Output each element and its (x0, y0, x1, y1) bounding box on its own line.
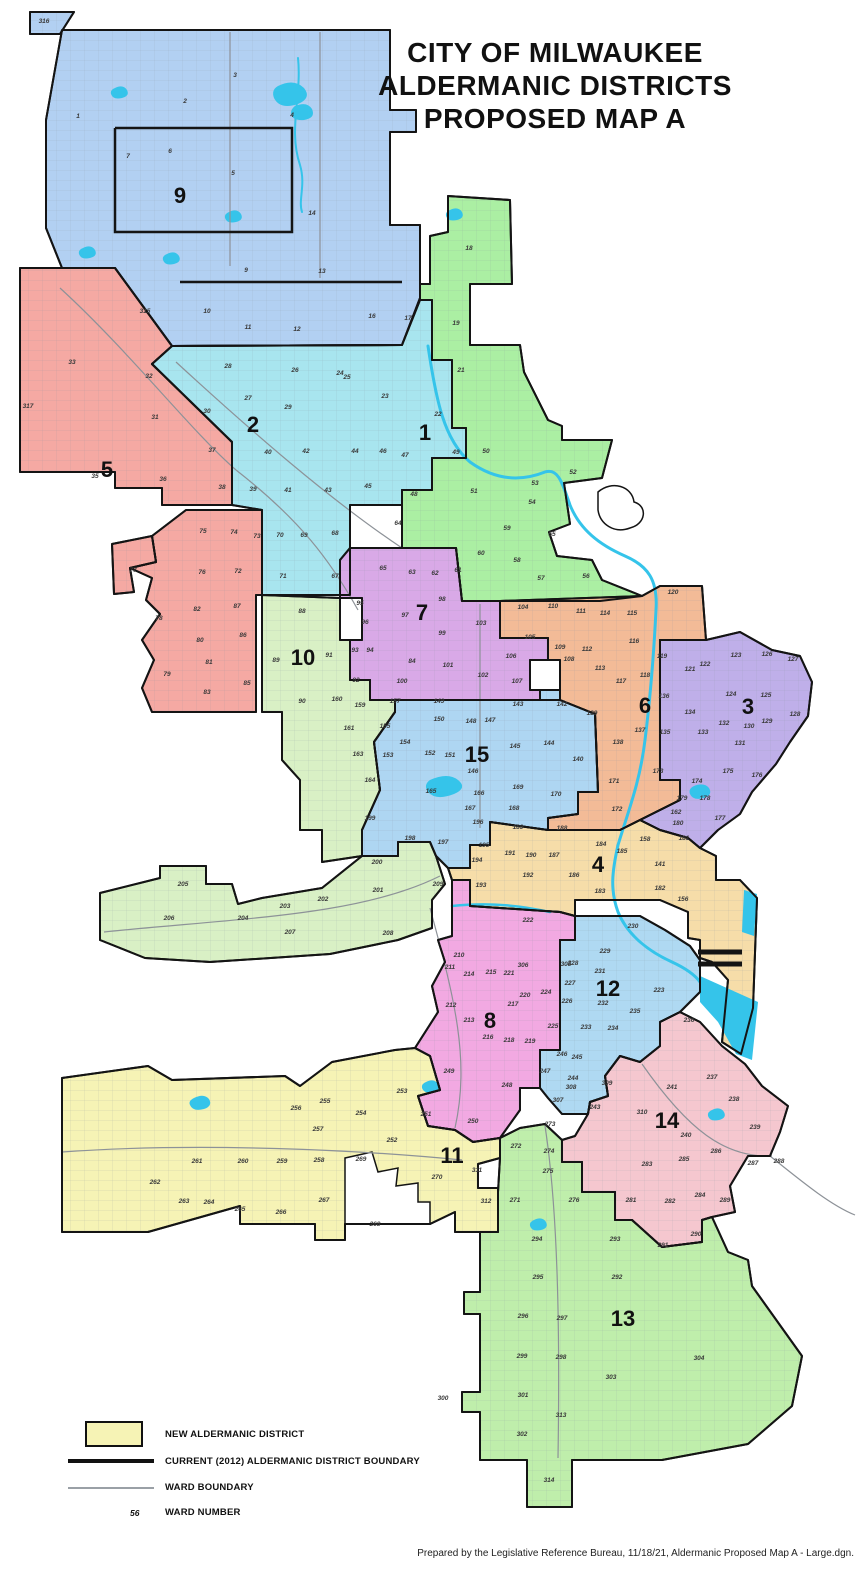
ward-number-187: 187 (549, 852, 560, 859)
legend-label-current-boundary: CURRENT (2012) ALDERMANIC DISTRICT BOUND… (165, 1456, 420, 1467)
ward-number-297: 297 (556, 1315, 568, 1322)
ward-number-258: 258 (313, 1157, 325, 1164)
ward-number-4: 4 (289, 112, 294, 119)
ward-number-310: 310 (637, 1109, 648, 1116)
ward-number-166: 166 (474, 790, 485, 797)
ward-number-148: 148 (466, 718, 477, 725)
ward-number-296: 296 (517, 1313, 529, 1320)
ward-number-54: 54 (528, 499, 536, 506)
ward-number-151: 151 (445, 752, 456, 759)
ward-number-202: 202 (317, 896, 329, 903)
district-7-label: 7 (416, 600, 428, 625)
ward-number-303: 303 (606, 1374, 617, 1381)
ward-number-9: 9 (244, 267, 248, 274)
legend-thin-line (68, 1487, 154, 1489)
ward-number-272: 272 (510, 1143, 522, 1150)
ward-number-231: 231 (594, 968, 606, 975)
ward-number-247: 247 (539, 1068, 551, 1075)
ward-number-62: 62 (431, 570, 439, 577)
ward-number-91: 91 (325, 652, 333, 659)
ward-number-211: 211 (444, 964, 456, 971)
ward-number-276: 276 (568, 1197, 580, 1204)
ward-number-283: 283 (641, 1161, 653, 1168)
ward-number-228: 228 (567, 960, 579, 967)
ward-number-209: 209 (432, 881, 444, 888)
ward-number-229: 229 (599, 948, 611, 955)
ward-number-218: 218 (503, 1037, 515, 1044)
ward-number-299: 299 (516, 1353, 528, 1360)
ward-number-14: 14 (308, 210, 316, 217)
ward-number-251: 251 (420, 1111, 432, 1118)
ward-number-49: 49 (451, 449, 460, 456)
ward-number-256: 256 (290, 1105, 302, 1112)
ward-number-88: 88 (298, 608, 306, 615)
ward-number-273: 273 (544, 1121, 556, 1128)
ward-number-183: 183 (595, 888, 606, 895)
ward-number-128: 128 (790, 711, 801, 718)
ward-number-219: 219 (524, 1038, 536, 1045)
ward-number-162: 162 (671, 809, 682, 816)
ward-number-315: 315 (140, 308, 151, 315)
ward-number-75: 75 (199, 528, 207, 535)
ward-number-82: 82 (193, 606, 201, 613)
ward-number-133: 133 (698, 729, 709, 736)
ward-number-39: 39 (249, 486, 257, 493)
district-1-label: 1 (419, 420, 431, 445)
ward-number-38: 38 (218, 484, 226, 491)
ward-number-225: 225 (547, 1023, 559, 1030)
ward-number-26: 26 (290, 367, 299, 374)
ward-number-257: 257 (312, 1126, 324, 1133)
ward-number-130: 130 (744, 723, 755, 730)
ward-number-65: 65 (379, 565, 387, 572)
ward-number-86: 86 (239, 632, 247, 639)
ward-number-295: 295 (532, 1274, 544, 1281)
ward-number-167: 167 (465, 805, 476, 812)
ward-number-244: 244 (567, 1075, 579, 1082)
ward-number-235: 235 (629, 1008, 641, 1015)
ward-number-80: 80 (196, 637, 204, 644)
ward-number-149: 149 (434, 698, 445, 705)
ward-number-237: 237 (706, 1074, 718, 1081)
district-15-label: 15 (465, 742, 489, 767)
ward-number-226: 226 (561, 998, 573, 1005)
ward-number-182: 182 (655, 885, 666, 892)
ward-number-172: 172 (612, 806, 623, 813)
ward-number-112: 112 (582, 646, 593, 653)
ward-number-268: 268 (369, 1221, 381, 1228)
district-8-label: 8 (484, 1008, 496, 1033)
credit-line: Prepared by the Legislative Reference Bu… (417, 1548, 854, 1559)
ward-number-216: 216 (482, 1034, 494, 1041)
ward-number-37: 37 (208, 447, 216, 454)
ward-number-249: 249 (443, 1068, 455, 1075)
ward-number-30: 30 (203, 408, 211, 415)
ward-number-64: 64 (394, 520, 402, 527)
ward-number-153: 153 (383, 752, 394, 759)
ward-number-232: 232 (597, 1000, 609, 1007)
ward-number-32: 32 (145, 373, 153, 380)
district-10-label: 10 (291, 645, 315, 670)
ward-number-290: 290 (690, 1231, 702, 1238)
ward-number-164: 164 (365, 777, 376, 784)
ward-number-269: 269 (355, 1156, 367, 1163)
ward-number-316: 316 (39, 18, 50, 25)
ward-number-243: 243 (589, 1104, 601, 1111)
ward-number-195: 195 (479, 842, 490, 849)
ward-number-144: 144 (544, 740, 555, 747)
ward-number-191: 191 (505, 850, 516, 857)
ward-number-137: 137 (635, 727, 646, 734)
ward-number-119: 119 (657, 653, 668, 660)
ward-number-12: 12 (293, 326, 301, 333)
ward-number-41: 41 (283, 487, 292, 494)
ward-number-79: 79 (163, 671, 171, 678)
ward-number-17: 17 (404, 315, 412, 322)
ward-number-212: 212 (445, 1002, 457, 1009)
ward-number-208: 208 (382, 930, 394, 937)
ward-number-165: 165 (426, 788, 437, 795)
ward-number-87: 87 (233, 603, 241, 610)
ward-number-185: 185 (617, 848, 628, 855)
page-title: CITY OF MILWAUKEE ALDERMANIC DISTRICTS P… (330, 36, 780, 135)
ward-number-154: 154 (400, 739, 411, 746)
ward-number-63: 63 (408, 569, 416, 576)
ward-number-43: 43 (323, 487, 332, 494)
ward-number-118: 118 (640, 672, 651, 679)
ward-number-181: 181 (679, 835, 690, 842)
ward-number-22: 22 (433, 411, 442, 418)
ward-number-110: 110 (548, 603, 559, 610)
ward-number-135: 135 (660, 729, 671, 736)
ward-number-94: 94 (366, 647, 374, 654)
ward-number-58: 58 (513, 557, 521, 564)
ward-number-51: 51 (470, 488, 478, 495)
ward-number-199: 199 (365, 815, 376, 822)
ward-number-224: 224 (540, 989, 552, 996)
ward-number-150: 150 (434, 716, 445, 723)
district-11-label: 11 (440, 1143, 463, 1168)
ward-number-113: 113 (595, 665, 606, 672)
ward-number-173: 173 (653, 768, 664, 775)
ward-number-206: 206 (163, 915, 175, 922)
ward-number-194: 194 (472, 857, 483, 864)
ward-number-126: 126 (762, 651, 773, 658)
legend-label-new-district: NEW ALDERMANIC DISTRICT (165, 1429, 304, 1440)
non-city-area (598, 486, 643, 530)
ward-number-169: 169 (513, 784, 524, 791)
ward-number-286: 286 (710, 1148, 722, 1155)
title-line-1: CITY OF MILWAUKEE (330, 36, 780, 69)
ward-number-59: 59 (503, 525, 511, 532)
ward-number-294: 294 (531, 1236, 543, 1243)
ward-number-291: 291 (657, 1242, 669, 1249)
ward-number-115: 115 (627, 610, 638, 617)
ward-number-147: 147 (485, 717, 496, 724)
ward-number-203: 203 (279, 903, 291, 910)
ward-number-107: 107 (512, 678, 523, 685)
ward-number-100: 100 (397, 678, 408, 685)
ward-number-3: 3 (233, 72, 237, 79)
ward-number-196: 196 (473, 819, 484, 826)
ward-number-132: 132 (719, 720, 730, 727)
ward-number-248: 248 (501, 1082, 513, 1089)
ward-number-73: 73 (253, 533, 261, 540)
ward-number-250: 250 (467, 1118, 479, 1125)
district-6-label: 6 (639, 693, 651, 718)
ward-number-230: 230 (627, 923, 639, 930)
ward-number-27: 27 (243, 395, 252, 402)
ward-number-180: 180 (673, 820, 684, 827)
legend-label-ward-boundary: WARD BOUNDARY (165, 1482, 254, 1493)
ward-number-188: 188 (557, 825, 568, 832)
ward-number-76: 76 (198, 569, 206, 576)
ward-number-35: 35 (91, 473, 99, 480)
ward-number-72: 72 (234, 568, 242, 575)
ward-number-213: 213 (463, 1017, 475, 1024)
ward-number-127: 127 (788, 656, 799, 663)
ward-number-307: 307 (553, 1097, 564, 1104)
ward-number-106: 106 (506, 653, 517, 660)
district-4-label: 4 (592, 852, 605, 877)
ward-number-168: 168 (509, 805, 520, 812)
ward-number-159: 159 (355, 702, 366, 709)
ward-number-143: 143 (513, 701, 524, 708)
ward-number-222: 222 (522, 917, 534, 924)
ward-number-136: 136 (659, 693, 670, 700)
ward-number-239: 239 (749, 1124, 761, 1131)
legend-ward-number-symbol: 56 (130, 1508, 139, 1518)
ward-number-175: 175 (723, 768, 734, 775)
ward-number-156: 156 (678, 896, 689, 903)
ward-number-71: 71 (279, 573, 287, 580)
ward-number-220: 220 (519, 992, 531, 999)
district-9-label: 9 (174, 183, 186, 208)
ward-number-292: 292 (611, 1274, 623, 1281)
ward-number-56: 56 (582, 573, 590, 580)
ward-number-67: 67 (331, 573, 339, 580)
ward-number-42: 42 (301, 448, 310, 455)
ward-number-178: 178 (700, 795, 711, 802)
ward-number-134: 134 (685, 709, 696, 716)
ward-number-121: 121 (685, 666, 696, 673)
ward-number-311: 311 (472, 1167, 483, 1174)
ward-number-102: 102 (478, 672, 489, 679)
ward-number-227: 227 (564, 980, 576, 987)
ward-number-28: 28 (223, 363, 232, 370)
ward-number-266: 266 (275, 1209, 287, 1216)
ward-number-261: 261 (191, 1158, 203, 1165)
district-12-label: 12 (596, 976, 620, 1001)
ward-number-7: 7 (126, 153, 130, 160)
ward-number-264: 264 (203, 1199, 215, 1206)
ward-number-111: 111 (576, 608, 586, 615)
ward-number-60: 60 (477, 550, 485, 557)
ward-number-282: 282 (664, 1198, 676, 1205)
ward-number-97: 97 (401, 612, 409, 619)
ward-number-312: 312 (481, 1198, 492, 1205)
ward-number-146: 146 (468, 768, 479, 775)
ward-number-44: 44 (350, 448, 359, 455)
ward-number-160: 160 (332, 696, 343, 703)
ward-number-155: 155 (380, 723, 391, 730)
ward-number-285: 285 (678, 1156, 690, 1163)
ward-number-131: 131 (735, 740, 746, 747)
ward-number-85: 85 (243, 680, 251, 687)
ward-number-317: 317 (23, 403, 34, 410)
ward-number-255: 255 (319, 1098, 331, 1105)
ward-number-57: 57 (537, 575, 545, 582)
district-13-label: 13 (611, 1306, 635, 1331)
ward-number-215: 215 (485, 969, 497, 976)
ward-number-98: 98 (438, 596, 446, 603)
ward-number-275: 275 (542, 1168, 554, 1175)
ward-number-314: 314 (544, 1477, 555, 1484)
ward-number-271: 271 (509, 1197, 521, 1204)
ward-number-45: 45 (363, 483, 372, 490)
ward-number-29: 29 (283, 404, 292, 411)
ward-number-122: 122 (700, 661, 711, 668)
ward-number-260: 260 (237, 1158, 249, 1165)
ward-number-11: 11 (245, 324, 252, 331)
ward-number-210: 210 (453, 952, 465, 959)
ward-number-161: 161 (344, 725, 355, 732)
ward-number-55: 55 (548, 531, 556, 538)
ward-number-152: 152 (425, 750, 436, 757)
ward-number-120: 120 (668, 589, 679, 596)
ward-number-77: 77 (129, 567, 137, 574)
ward-number-240: 240 (680, 1132, 692, 1139)
ward-number-253: 253 (396, 1088, 408, 1095)
ward-number-141: 141 (655, 861, 666, 868)
ward-number-83: 83 (203, 689, 211, 696)
ward-number-174: 174 (692, 778, 703, 785)
ward-number-171: 171 (609, 778, 620, 785)
ward-number-69: 69 (300, 532, 308, 539)
ward-number-207: 207 (284, 929, 296, 936)
ward-number-19: 19 (452, 320, 460, 327)
ward-number-246: 246 (556, 1051, 568, 1058)
ward-number-104: 104 (518, 604, 529, 611)
ward-number-40: 40 (263, 449, 272, 456)
ward-number-61: 61 (454, 567, 462, 574)
ward-number-306: 306 (518, 962, 529, 969)
ward-number-117: 117 (616, 678, 627, 685)
ward-number-189: 189 (513, 824, 524, 831)
ward-number-287: 287 (747, 1160, 759, 1167)
ward-number-36: 36 (159, 476, 167, 483)
ward-number-129: 129 (762, 718, 773, 725)
ward-number-74: 74 (230, 529, 238, 536)
ward-number-197: 197 (438, 839, 449, 846)
ward-number-157: 157 (390, 698, 401, 705)
ward-number-186: 186 (569, 872, 580, 879)
ward-number-89: 89 (272, 657, 280, 664)
legend-district-swatch (85, 1421, 143, 1447)
ward-number-5: 5 (231, 170, 235, 177)
ward-number-270: 270 (431, 1174, 443, 1181)
ward-number-99: 99 (438, 630, 446, 637)
ward-number-158: 158 (640, 836, 651, 843)
ward-number-33: 33 (68, 359, 76, 366)
ward-number-114: 114 (600, 610, 611, 617)
ward-number-10: 10 (203, 308, 211, 315)
ward-number-259: 259 (276, 1158, 288, 1165)
ward-number-200: 200 (371, 859, 383, 866)
legend-label-ward-number: WARD NUMBER (165, 1507, 241, 1518)
ward-number-1: 1 (76, 113, 80, 120)
ward-number-70: 70 (276, 532, 284, 539)
milwaukee-districts-map: 3161234567149131011121617315317333536323… (0, 0, 864, 1590)
ward-number-190: 190 (526, 852, 537, 859)
ward-number-267: 267 (318, 1197, 330, 1204)
district-5-label: 5 (101, 457, 113, 482)
ward-number-313: 313 (556, 1412, 567, 1419)
ward-number-217: 217 (507, 1001, 519, 1008)
legend: NEW ALDERMANIC DISTRICT CURRENT (2012) A… (60, 1390, 490, 1530)
ward-number-198: 198 (405, 835, 416, 842)
ward-number-214: 214 (463, 971, 475, 978)
ward-number-48: 48 (409, 491, 418, 498)
ward-number-140: 140 (573, 756, 584, 763)
ward-number-53: 53 (531, 480, 539, 487)
ward-number-233: 233 (580, 1024, 592, 1031)
ward-number-309: 309 (602, 1080, 613, 1087)
ward-number-179: 179 (677, 795, 688, 802)
ward-number-293: 293 (609, 1236, 621, 1243)
ward-number-193: 193 (476, 882, 487, 889)
ward-number-205: 205 (177, 881, 189, 888)
ward-number-52: 52 (569, 469, 577, 476)
ward-number-84: 84 (408, 658, 416, 665)
ward-number-105: 105 (525, 634, 536, 641)
ward-number-281: 281 (625, 1197, 637, 1204)
ward-number-125: 125 (761, 692, 772, 699)
ward-number-124: 124 (726, 691, 737, 698)
ward-number-274: 274 (543, 1148, 555, 1155)
ward-number-170: 170 (551, 791, 562, 798)
ward-number-288: 288 (773, 1158, 785, 1165)
ward-number-304: 304 (694, 1355, 705, 1362)
ward-number-101: 101 (443, 662, 454, 669)
ward-number-2: 2 (182, 98, 187, 105)
ward-number-308: 308 (566, 1084, 577, 1091)
ward-number-116: 116 (629, 638, 640, 645)
ward-number-254: 254 (355, 1110, 367, 1117)
ward-number-23: 23 (380, 393, 389, 400)
ward-number-109: 109 (555, 644, 566, 651)
ward-number-252: 252 (386, 1137, 398, 1144)
ward-number-25: 25 (342, 374, 351, 381)
ward-number-93: 93 (351, 647, 359, 654)
ward-number-96: 96 (361, 619, 369, 626)
ward-number-138: 138 (613, 739, 624, 746)
ward-number-262: 262 (149, 1179, 161, 1186)
ward-number-47: 47 (400, 452, 409, 459)
ward-number-21: 21 (456, 367, 465, 374)
ward-number-241: 241 (666, 1084, 678, 1091)
ward-number-234: 234 (607, 1025, 619, 1032)
ward-number-301: 301 (518, 1392, 529, 1399)
title-line-3: PROPOSED MAP A (330, 102, 780, 135)
ward-number-236: 236 (683, 1017, 695, 1024)
ward-number-81: 81 (205, 659, 213, 666)
ward-number-68: 68 (331, 530, 339, 537)
legend-thick-line (68, 1459, 154, 1463)
ward-number-92: 92 (352, 677, 360, 684)
ward-number-302: 302 (517, 1431, 528, 1438)
ward-number-13: 13 (318, 268, 326, 275)
